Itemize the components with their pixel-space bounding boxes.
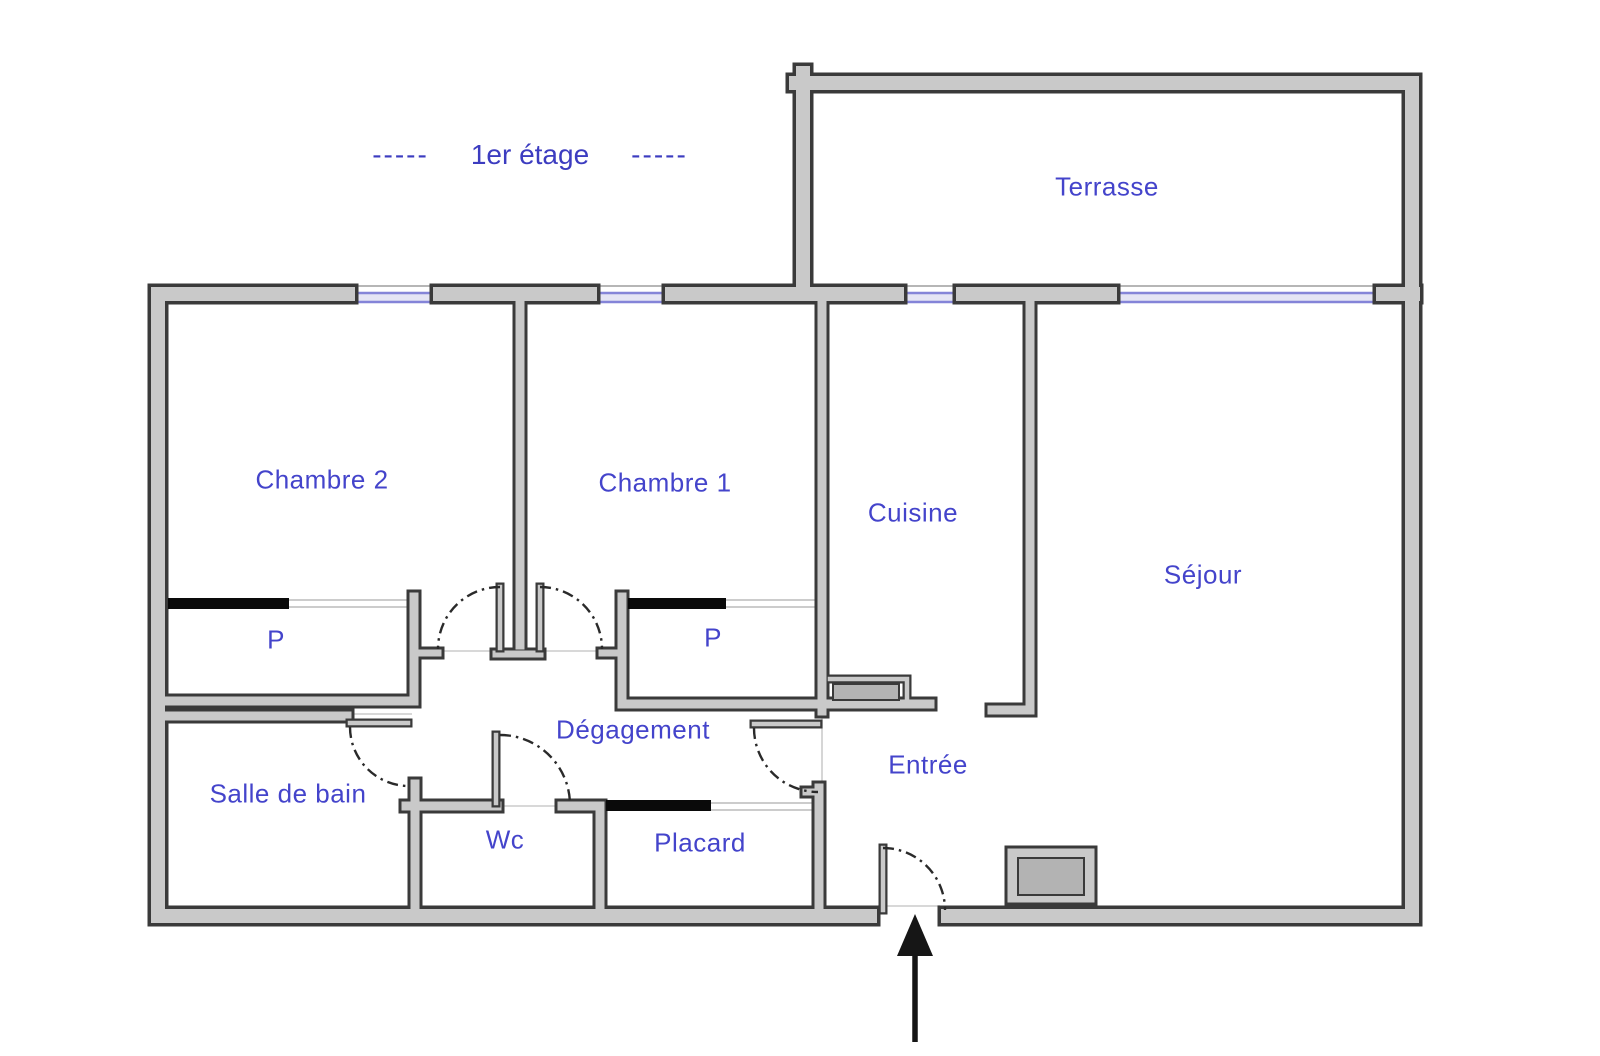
duct-entree-inner	[1018, 858, 1084, 895]
title-dashes-left: -----	[372, 139, 429, 171]
entrance-arrow-icon	[897, 914, 933, 1042]
room-label-degagement: Dégagement	[556, 715, 710, 746]
door-arcs	[350, 587, 945, 910]
title-text: 1er étage	[471, 139, 589, 171]
threshold-lines	[288, 600, 940, 906]
room-label-wc: Wc	[486, 825, 525, 856]
door-arc-salle-de-bain	[350, 727, 409, 786]
ducts	[833, 684, 1096, 904]
title-dashes-right: -----	[631, 139, 688, 171]
duct-cuisine	[833, 684, 899, 700]
floor-title: ----- 1er étage -----	[372, 139, 688, 171]
room-label-chambre1: Chambre 1	[598, 468, 731, 499]
window-sejour	[1110, 286, 1383, 302]
door-arc-chambre2	[438, 587, 500, 649]
floor-plan-page: ----- 1er étage ----- Terrasse Chambre 2…	[0, 0, 1600, 1056]
sliding-door-p-chambre2	[168, 598, 289, 609]
window-chambre2	[348, 286, 440, 302]
door-arc-entree	[754, 728, 818, 792]
room-label-chambre2: Chambre 2	[255, 465, 388, 496]
room-label-p-chambre2: P	[267, 625, 285, 656]
sliding-door-p-chambre1	[628, 598, 726, 609]
floor-plan-drawing	[0, 0, 1600, 1056]
room-label-sejour: Séjour	[1164, 560, 1242, 591]
door-arc-entrance	[883, 848, 945, 910]
sliding-door-placard	[606, 800, 711, 811]
window-chambre1	[590, 286, 672, 302]
room-label-cuisine: Cuisine	[868, 498, 958, 529]
door-arc-wc	[500, 735, 570, 805]
room-label-placard: Placard	[654, 828, 746, 859]
room-label-entree: Entrée	[888, 750, 968, 781]
room-label-p-chambre1: P	[704, 623, 722, 654]
room-label-terrasse: Terrasse	[1055, 172, 1159, 203]
room-label-salle-de-bain: Salle de bain	[210, 779, 367, 810]
door-arc-chambre1	[540, 587, 602, 649]
